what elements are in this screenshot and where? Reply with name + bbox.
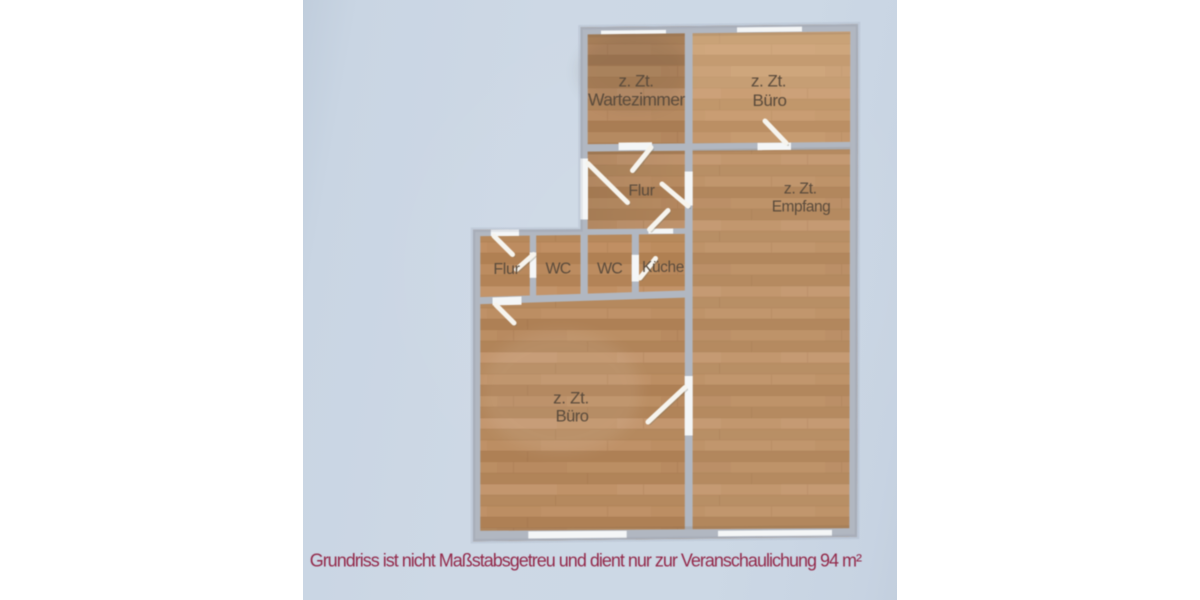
svg-text:Empfang: Empfang — [772, 199, 831, 216]
svg-text:Wartezimmer: Wartezimmer — [588, 90, 685, 110]
svg-text:Büro: Büro — [753, 91, 787, 110]
svg-text:z. Zt.: z. Zt. — [618, 72, 653, 91]
svg-text:WC: WC — [545, 261, 570, 278]
svg-text:Büro: Büro — [556, 408, 589, 426]
svg-text:z. Zt.: z. Zt. — [553, 389, 589, 408]
svg-text:z. Zt.: z. Zt. — [751, 72, 786, 91]
svg-text:Flur: Flur — [628, 183, 655, 200]
svg-text:Flur: Flur — [493, 261, 520, 278]
svg-text:z. Zt.: z. Zt. — [784, 181, 817, 198]
svg-text:Grundriss ist nicht Maßstabsge: Grundriss ist nicht Maßstabsgetreu und d… — [310, 551, 862, 571]
svg-text:WC: WC — [597, 261, 622, 278]
svg-text:Küche: Küche — [642, 259, 684, 276]
